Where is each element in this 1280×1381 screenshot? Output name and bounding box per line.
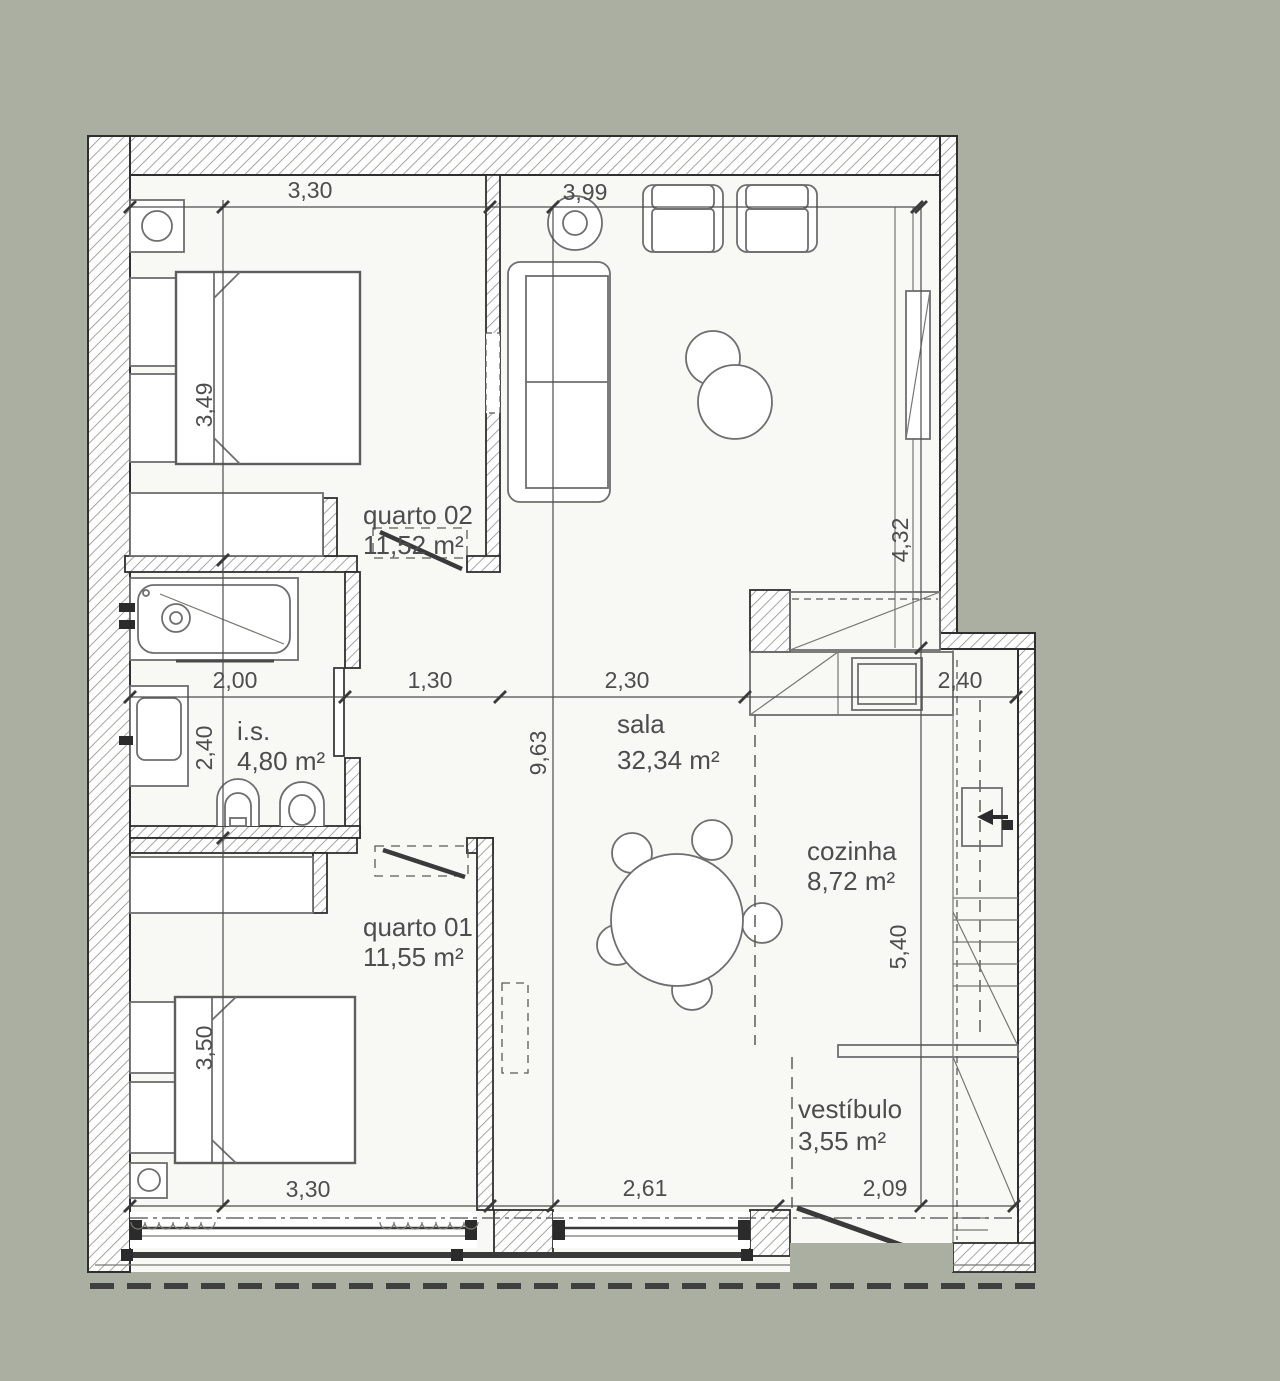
panel-arrow-base <box>1002 820 1013 830</box>
dim-label-bath-height: 2,40 <box>191 726 217 771</box>
room-area-vestibulo: 3,55 m² <box>798 1126 886 1156</box>
nightstand-lamp-table-q2 <box>130 200 184 252</box>
nightstand-q1-1 <box>130 1002 175 1073</box>
dim-label-sala-height: 9,63 <box>525 731 551 776</box>
dim-label-bottom-quarto01: 3,30 <box>286 1176 331 1202</box>
dim-label-sala-width: 2,30 <box>605 667 650 693</box>
room-label-quarto01: quarto 01 <box>363 912 473 942</box>
armchair-1 <box>643 185 723 252</box>
dim-label-top-sala: 3,99 <box>563 179 608 205</box>
room-area-sala: 32,34 m² <box>617 745 720 775</box>
wall-quarto02-bottom <box>125 556 357 572</box>
wall-quarto01-top <box>130 838 357 853</box>
room-label-is: i.s. <box>237 716 270 746</box>
room-label-cozinha: cozinha <box>807 836 897 866</box>
double-bed-q2 <box>176 272 360 464</box>
wall-quarto01-sala <box>477 838 493 1210</box>
window-q1-frame-left <box>130 1220 142 1240</box>
dim-label-top-quarto02: 3,30 <box>288 177 333 203</box>
dim-label-quarto02-height: 3,49 <box>191 383 217 428</box>
nightstand-q2-1 <box>130 278 176 366</box>
wall-left <box>88 136 130 1272</box>
wall-right-lower <box>1018 649 1035 1272</box>
dim-label-cozinha-width: 2,40 <box>938 667 983 693</box>
wall-right-upper <box>940 136 957 633</box>
wall-pier-left <box>494 1210 553 1256</box>
wall-step <box>940 633 1035 649</box>
dining-table <box>611 854 743 986</box>
wall-corner-bottom-right <box>953 1243 1035 1272</box>
dim-label-sala-right-height: 4,32 <box>887 518 913 563</box>
dim-label-bath-width: 2,00 <box>213 667 258 693</box>
room-label-quarto02: quarto 02 <box>363 500 473 530</box>
wall-niche-dashed <box>486 333 500 413</box>
tap-icon-tub-2 <box>119 620 135 629</box>
nightstand-q2-2 <box>130 374 176 462</box>
room-label-vestibulo: vestíbulo <box>798 1094 902 1124</box>
wall-kitchen-pillar <box>750 590 790 652</box>
tap-icon-tub-1 <box>119 603 135 612</box>
window-sala-frame-left <box>553 1220 565 1240</box>
room-label-sala: sala <box>617 709 665 739</box>
room-area-cozinha: 8,72 m² <box>807 866 895 896</box>
wardrobe-q1 <box>130 857 313 913</box>
dim-label-cozinha-height: 5,40 <box>885 925 911 970</box>
dresser-q2 <box>130 493 323 556</box>
coffee-table-large <box>698 365 772 439</box>
wall-stub-quarto01 <box>313 853 327 913</box>
bathtub <box>130 578 298 660</box>
dim-label-quarto01-height: 3,50 <box>191 1026 217 1071</box>
dining-chair-2 <box>692 820 732 860</box>
armchair-2 <box>737 185 817 252</box>
dim-label-bottom-sala: 2,61 <box>623 1175 668 1201</box>
nightstand-q1-2 <box>130 1082 175 1153</box>
window-sala-frame-right <box>738 1220 750 1240</box>
dining-chair-3 <box>742 903 782 943</box>
window-q1-frame-right <box>465 1220 477 1240</box>
wall-bath-right-upper <box>345 572 360 668</box>
dim-label-hall-width: 1,30 <box>408 667 453 693</box>
wall-bath-bottom <box>130 826 360 838</box>
wall-stub-quarto02 <box>323 498 337 556</box>
rail-post-1 <box>121 1249 133 1261</box>
rail-post-3 <box>741 1249 753 1261</box>
room-area-is: 4,80 m² <box>237 746 325 776</box>
entry-threshold-notch <box>790 1243 953 1272</box>
wall-quarto02-door-jamb <box>467 556 500 572</box>
bidet <box>280 782 324 826</box>
sliding-door-bath <box>334 668 344 756</box>
wall-top <box>88 136 957 175</box>
room-area-quarto02: 11,52 m² <box>363 530 464 560</box>
tap-icon-basin <box>119 736 133 745</box>
dim-label-bottom-vestibulo: 2,09 <box>863 1175 908 1201</box>
room-area-quarto01: 11,55 m² <box>363 942 464 972</box>
floor-plan: 3,30 3,99 2,00 1,30 2,30 2,40 3,30 2,61 … <box>0 0 1280 1381</box>
double-bed-q1 <box>175 997 355 1163</box>
wall-pier-right <box>750 1210 790 1256</box>
rail-post-2 <box>451 1249 463 1261</box>
